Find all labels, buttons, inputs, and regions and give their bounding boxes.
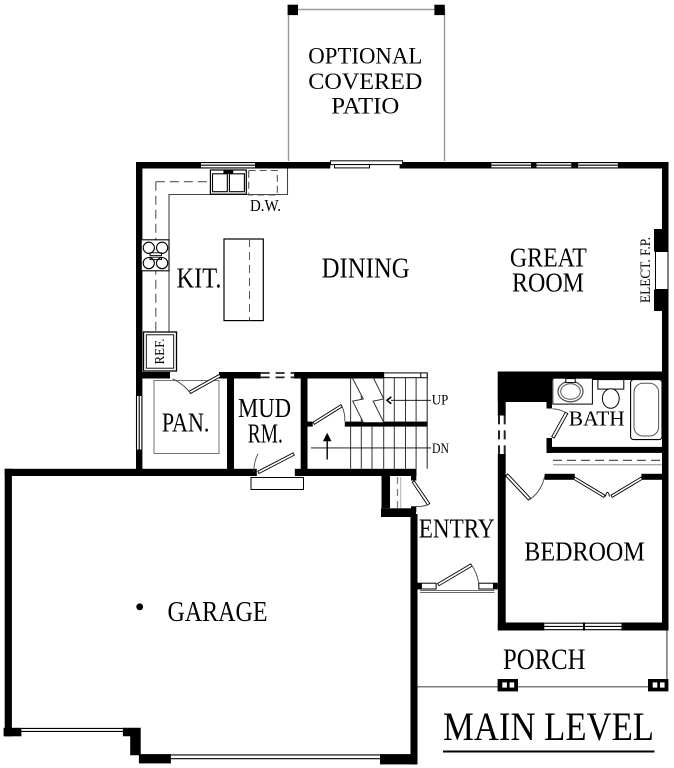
svg-text:REF.: REF. <box>152 339 167 365</box>
svg-text:BATH: BATH <box>569 407 625 431</box>
svg-text:OPTIONAL: OPTIONAL <box>308 44 422 70</box>
svg-text:RM.: RM. <box>248 419 283 449</box>
svg-text:KIT.: KIT. <box>177 264 222 295</box>
svg-text:PORCH: PORCH <box>503 643 586 676</box>
svg-text:GARAGE: GARAGE <box>168 597 268 628</box>
svg-text:UP: UP <box>432 393 449 409</box>
svg-text:DINING: DINING <box>322 253 410 284</box>
svg-text:MAIN LEVEL: MAIN LEVEL <box>443 704 654 749</box>
svg-text:ENTRY: ENTRY <box>419 513 495 543</box>
svg-text:DN: DN <box>432 441 449 457</box>
svg-text:BEDROOM: BEDROOM <box>524 537 645 567</box>
svg-text:PATIO: PATIO <box>331 93 399 119</box>
svg-text:ROOM: ROOM <box>512 266 584 297</box>
svg-text:ELECT. F.P.: ELECT. F.P. <box>638 237 654 303</box>
svg-text:D.W.: D.W. <box>250 196 281 215</box>
svg-text:PAN.: PAN. <box>162 408 210 438</box>
svg-text:COVERED: COVERED <box>308 69 422 95</box>
